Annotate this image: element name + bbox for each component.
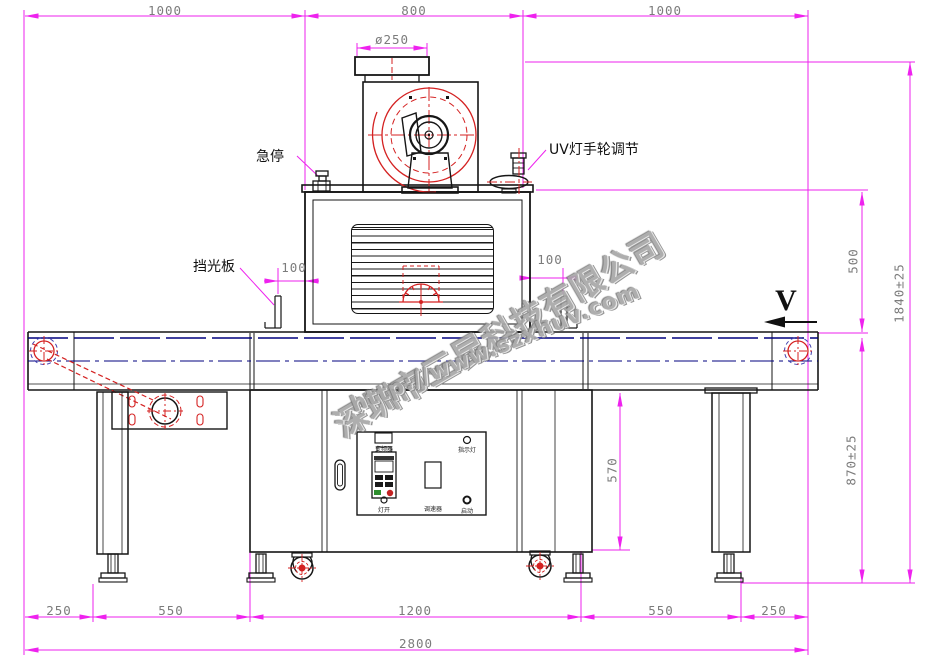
label-light-shield: 挡光板 <box>193 256 235 276</box>
casters-and-feet <box>99 551 743 582</box>
panel-label-speed: 调速器 <box>424 504 442 513</box>
panel-label-start: 启动 <box>461 506 473 515</box>
leveling-foot <box>564 554 592 582</box>
caster <box>526 551 554 580</box>
uv-lamp-reflector-gauge <box>399 266 443 316</box>
indicator-light <box>464 437 471 444</box>
dim-top-center: 800 <box>401 3 427 18</box>
door-handle <box>335 460 345 490</box>
start-button <box>464 497 471 504</box>
panel-label-indicator: 指示灯 <box>458 445 476 454</box>
panel-label-lamp: 灯开 <box>378 505 390 514</box>
control-cabinet <box>250 390 592 552</box>
dim-bottom-4: 550 <box>648 603 674 618</box>
dim-belt-height: 870±25 <box>844 434 859 485</box>
dim-bottom-2: 550 <box>158 603 184 618</box>
panel-switch <box>375 433 392 443</box>
dim-cabinet-height: 570 <box>605 457 620 483</box>
dim-duct-diameter: ø250 <box>375 32 409 47</box>
drive-motor <box>33 344 227 429</box>
support-column-right <box>705 388 757 552</box>
caster <box>288 553 316 582</box>
dim-overall-width: 2800 <box>399 636 433 651</box>
dim-shield-right: 100 <box>537 252 563 267</box>
belt-direction-arrow <box>764 317 817 328</box>
panel-label-inverter: 变频器 <box>375 444 393 453</box>
label-uv-handwheel: UV灯手轮调节 <box>549 139 639 159</box>
exhaust-fan <box>355 57 478 193</box>
dim-overall-height: 1840±25 <box>892 263 907 323</box>
light-shield-left <box>265 296 281 328</box>
emergency-stop-button <box>313 171 330 191</box>
dim-lamp-to-belt: 500 <box>846 248 861 274</box>
uv-handwheel <box>487 148 532 196</box>
inverter-unit <box>372 447 396 498</box>
speed-controller-meter <box>425 462 441 488</box>
leveling-foot <box>99 554 127 582</box>
dim-shield-left: 100 <box>281 260 307 275</box>
dim-top-right: 1000 <box>648 3 682 18</box>
dim-bottom-5: 250 <box>761 603 787 618</box>
dim-top-left: 1000 <box>148 3 182 18</box>
dim-bottom-3: 1200 <box>398 603 432 618</box>
engineering-drawing-sheet: 1000 800 1000 ø250 100 100 500 870±25 18… <box>0 0 926 665</box>
leveling-foot <box>715 554 743 582</box>
leveling-foot <box>247 554 275 582</box>
label-belt-direction: V <box>775 284 797 318</box>
dim-bottom-1: 250 <box>46 603 72 618</box>
label-emergency-stop: 急停 <box>256 146 284 166</box>
